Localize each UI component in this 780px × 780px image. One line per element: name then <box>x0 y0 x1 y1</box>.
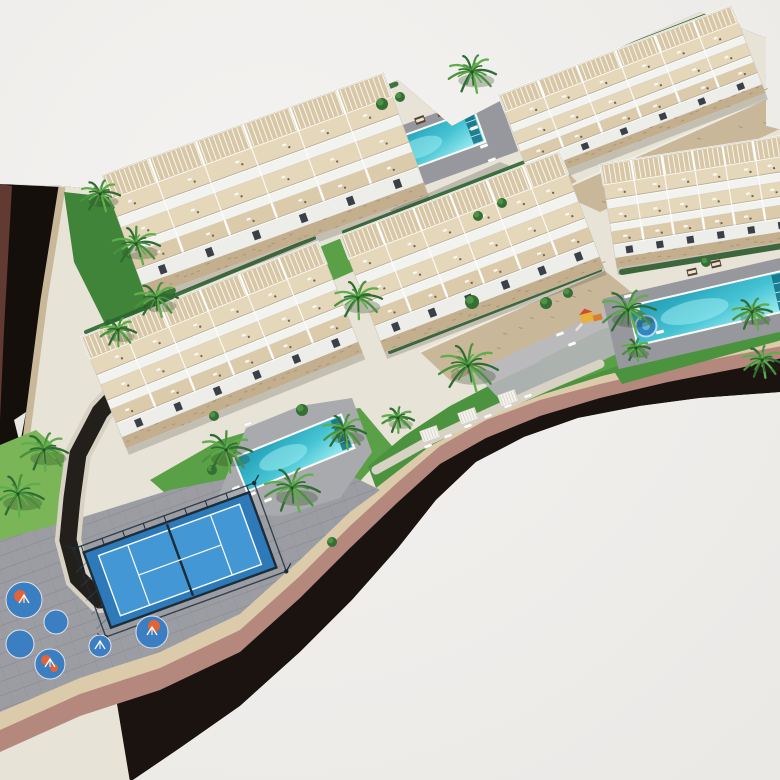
bush-highlight <box>297 405 304 412</box>
stone-speckle <box>620 262 623 263</box>
playground-pad <box>44 610 68 634</box>
stone-speckle <box>754 242 757 243</box>
palm-crown <box>760 358 763 361</box>
stone-speckle <box>736 245 739 246</box>
stone-speckle <box>673 249 676 250</box>
window <box>686 236 694 244</box>
stone-speckle <box>690 248 693 249</box>
bush-highlight <box>702 258 708 264</box>
stone-speckle <box>628 260 631 261</box>
palm-frond <box>628 310 629 325</box>
palm-crown <box>290 486 293 489</box>
playground-pad <box>6 630 34 658</box>
palm-crown <box>42 448 45 451</box>
terrace-furniture-dark <box>751 195 753 197</box>
bush-highlight <box>474 212 480 218</box>
stone-speckle <box>699 254 702 255</box>
stone-speckle <box>683 254 686 255</box>
stone-speckle <box>658 256 661 257</box>
bush-highlight <box>466 296 474 304</box>
stone-speckle <box>667 256 670 257</box>
stone-speckle <box>642 258 645 259</box>
palm-crown <box>634 346 637 349</box>
terrace-furniture-dark <box>659 210 661 212</box>
terrace-furniture-dark <box>720 222 722 224</box>
palm-crown <box>224 448 227 451</box>
palm-crown <box>342 428 345 431</box>
bush-highlight <box>396 93 402 99</box>
window <box>625 245 633 253</box>
bush-highlight <box>564 289 570 295</box>
stone-speckle <box>635 258 638 259</box>
stone-speckle <box>730 246 733 247</box>
bush-highlight <box>210 412 216 418</box>
palm-crown <box>356 296 359 299</box>
window <box>656 240 664 248</box>
stone-speckle <box>769 241 772 242</box>
terrace-furniture-dark <box>658 185 660 187</box>
stone-speckle <box>647 253 650 254</box>
terrace-furniture-dark <box>718 200 720 202</box>
terrace-furniture-dark <box>624 191 626 193</box>
terrace-furniture-dark <box>661 231 663 233</box>
bush-highlight <box>328 538 334 544</box>
terrace-furniture-dark <box>624 215 626 217</box>
palm-crown <box>134 242 137 245</box>
palm-crown <box>116 328 119 331</box>
window <box>747 226 755 234</box>
terrace-furniture-dark <box>628 237 630 239</box>
bush-highlight <box>541 298 548 305</box>
palm-crown <box>98 192 101 195</box>
terrace-furniture-dark <box>749 171 751 173</box>
stone-speckle <box>761 242 764 243</box>
aerial-site-render-stage <box>0 0 780 780</box>
window <box>717 231 725 239</box>
bush-highlight <box>498 199 504 205</box>
bush-highlight <box>377 99 384 106</box>
terrace-furniture-dark <box>689 227 691 229</box>
palm-crown <box>470 70 473 73</box>
stone-speckle <box>718 243 721 244</box>
palm-crown <box>396 416 399 419</box>
terrace-furniture-dark <box>718 176 720 178</box>
terrace-furniture-dark <box>685 205 687 207</box>
terrace-furniture-dark <box>687 181 689 183</box>
terrace-furniture-dark <box>773 167 775 169</box>
residential-complex-aerial-render <box>0 0 780 780</box>
terrace-furniture-dark <box>749 217 751 219</box>
terrace-furniture-dark <box>775 191 777 193</box>
stone-speckle <box>746 239 749 240</box>
palm-crown <box>154 296 157 299</box>
palm-crown <box>16 492 19 495</box>
palm-crown <box>750 310 753 313</box>
palm-frond <box>752 312 753 323</box>
palm-crown <box>466 364 469 367</box>
palm-crown <box>626 308 629 311</box>
